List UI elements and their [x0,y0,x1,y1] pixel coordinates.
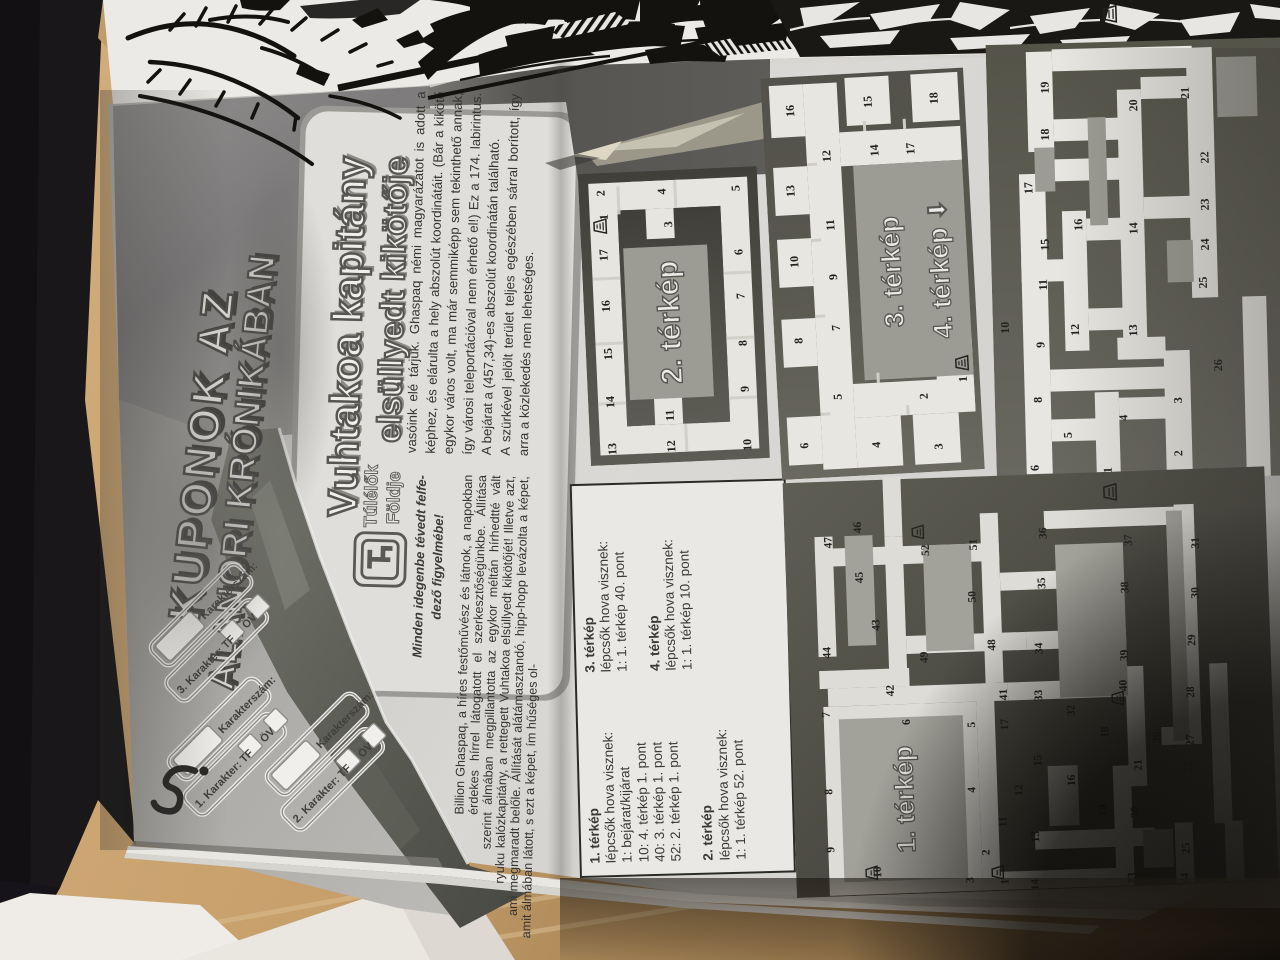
svg-text:10: 10 [998,322,1012,334]
svg-text:15: 15 [860,95,875,108]
svg-text:3: 3 [661,221,675,228]
svg-text:3: 3 [931,443,945,450]
svg-text:2: 2 [917,393,931,400]
svg-text:6: 6 [731,249,745,256]
svg-text:44: 44 [821,647,833,659]
svg-text:18: 18 [1038,128,1052,140]
svg-text:9: 9 [826,274,840,281]
svg-text:13: 13 [605,443,620,456]
svg-text:3. térkép: 3. térkép [874,215,910,328]
svg-text:16: 16 [598,300,613,313]
svg-text:13: 13 [783,185,798,198]
svg-text:5: 5 [728,185,742,192]
svg-text:8: 8 [1031,397,1045,403]
svg-text:12: 12 [664,440,679,453]
svg-text:11: 11 [663,409,678,421]
svg-text:15: 15 [601,348,616,361]
svg-text:4: 4 [654,188,668,195]
svg-text:6: 6 [797,442,811,449]
svg-text:15: 15 [1038,238,1052,250]
svg-text:1: 1 [956,376,970,383]
svg-text:9: 9 [825,846,837,852]
svg-text:7: 7 [821,712,833,718]
svg-text:7: 7 [829,324,843,331]
svg-text:47: 47 [822,536,834,548]
svg-text:1: 1 [597,214,611,221]
svg-text:16: 16 [783,105,798,118]
svg-text:8: 8 [823,788,835,794]
svg-text:2: 2 [594,190,608,197]
svg-text:Földje: Földje [383,471,404,524]
svg-text:17: 17 [903,142,918,155]
svg-text:Túlélők: Túlélők [360,465,382,528]
svg-text:14: 14 [867,144,882,157]
svg-text:4: 4 [869,441,883,448]
svg-text:8: 8 [735,340,749,347]
svg-text:5: 5 [830,393,844,400]
svg-text:9: 9 [738,386,752,393]
svg-text:18: 18 [926,92,941,105]
svg-text:12: 12 [819,150,834,163]
svg-text:19: 19 [1038,81,1052,93]
svg-text:14: 14 [603,396,618,409]
svg-text:11: 11 [823,219,838,231]
svg-text:9: 9 [1033,342,1047,348]
svg-text:11: 11 [1036,279,1050,291]
svg-text:10: 10 [740,439,755,452]
svg-text:8: 8 [791,338,805,345]
svg-text:7: 7 [733,293,747,300]
svg-text:10: 10 [787,256,802,269]
svg-text:2. térkép: 2. térkép [651,260,690,385]
svg-text:17: 17 [596,249,611,262]
svg-text:17: 17 [1021,182,1035,194]
